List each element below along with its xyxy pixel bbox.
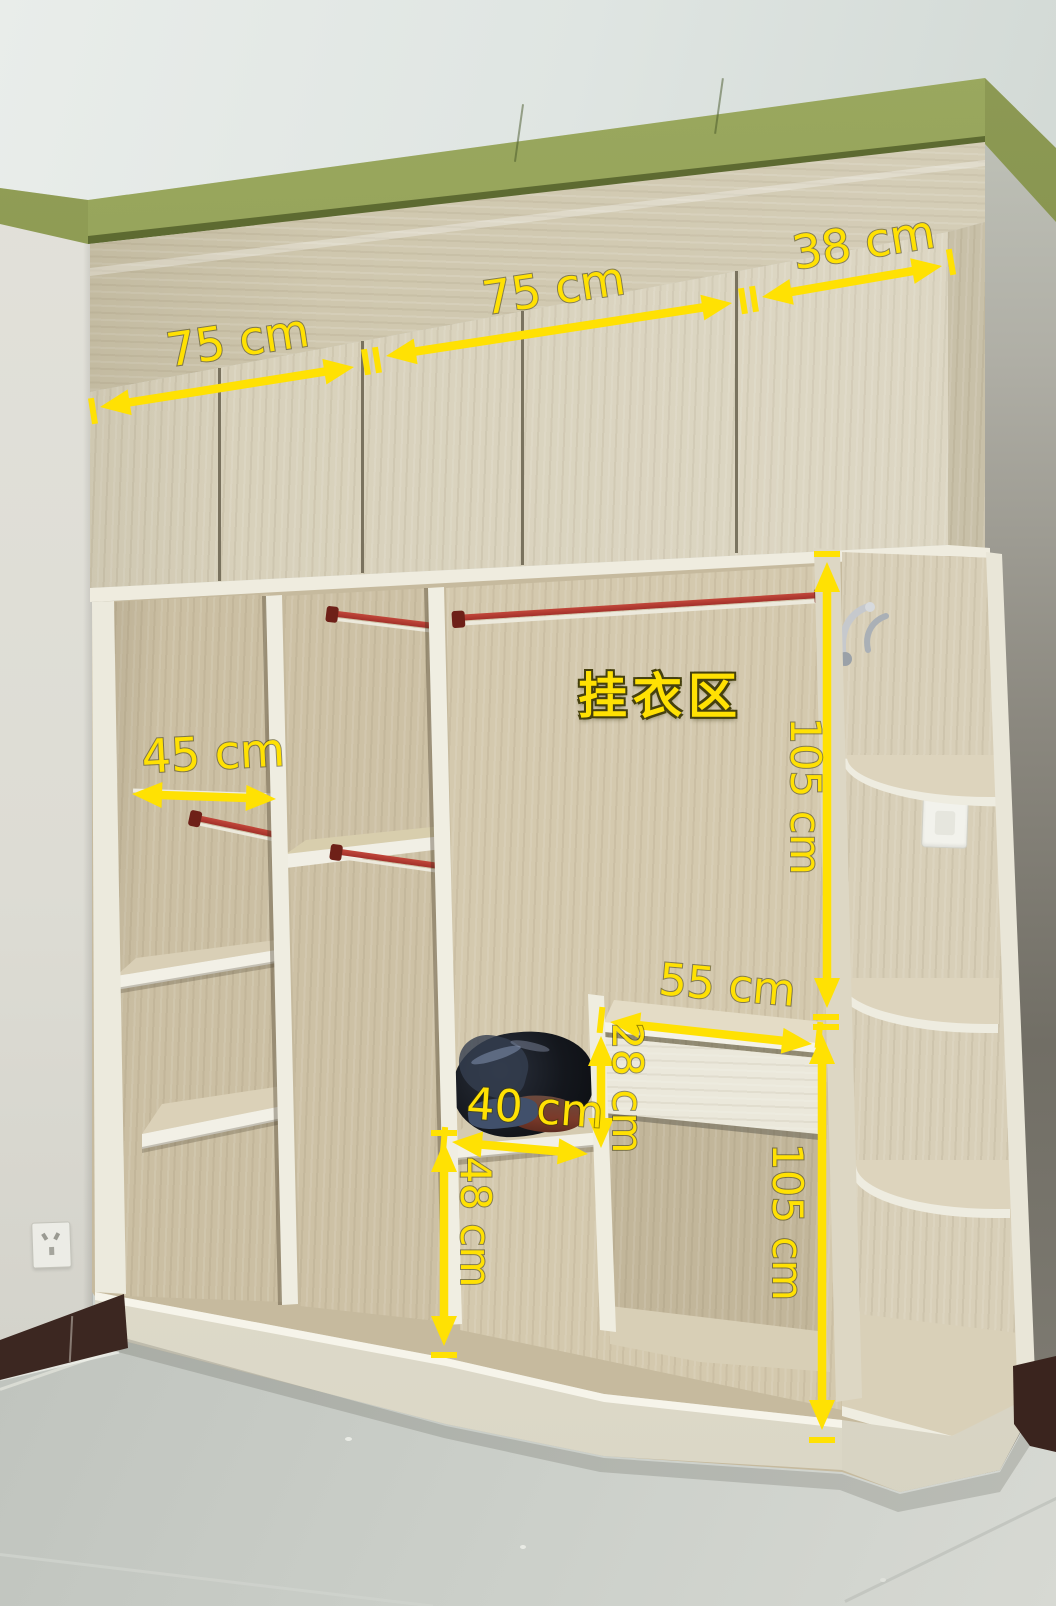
- storage-bag: [450, 1028, 600, 1148]
- hanging-area-label: 挂衣区: [578, 672, 748, 721]
- floor-speck: [520, 1545, 526, 1549]
- floor-speck: [345, 1437, 352, 1441]
- rod-bracket: [325, 606, 339, 623]
- door-seam: [361, 341, 364, 573]
- outlet-slot: [49, 1247, 54, 1255]
- door-seam: [218, 368, 221, 581]
- switch-rocker: [935, 811, 956, 836]
- power-outlet: [31, 1221, 72, 1268]
- annotated-wardrobe-photo: 75 cm75 cm38 cm45 cm105 cm55 cm28 cm40 c…: [0, 0, 1056, 1606]
- outlet-slot: [53, 1232, 60, 1240]
- door-seam: [521, 311, 524, 565]
- rod-bracket: [451, 610, 465, 628]
- floor-speck: [880, 1578, 886, 1582]
- outlet-slot: [41, 1233, 48, 1241]
- rod-bracket: [329, 844, 343, 862]
- door-seam: [735, 271, 738, 553]
